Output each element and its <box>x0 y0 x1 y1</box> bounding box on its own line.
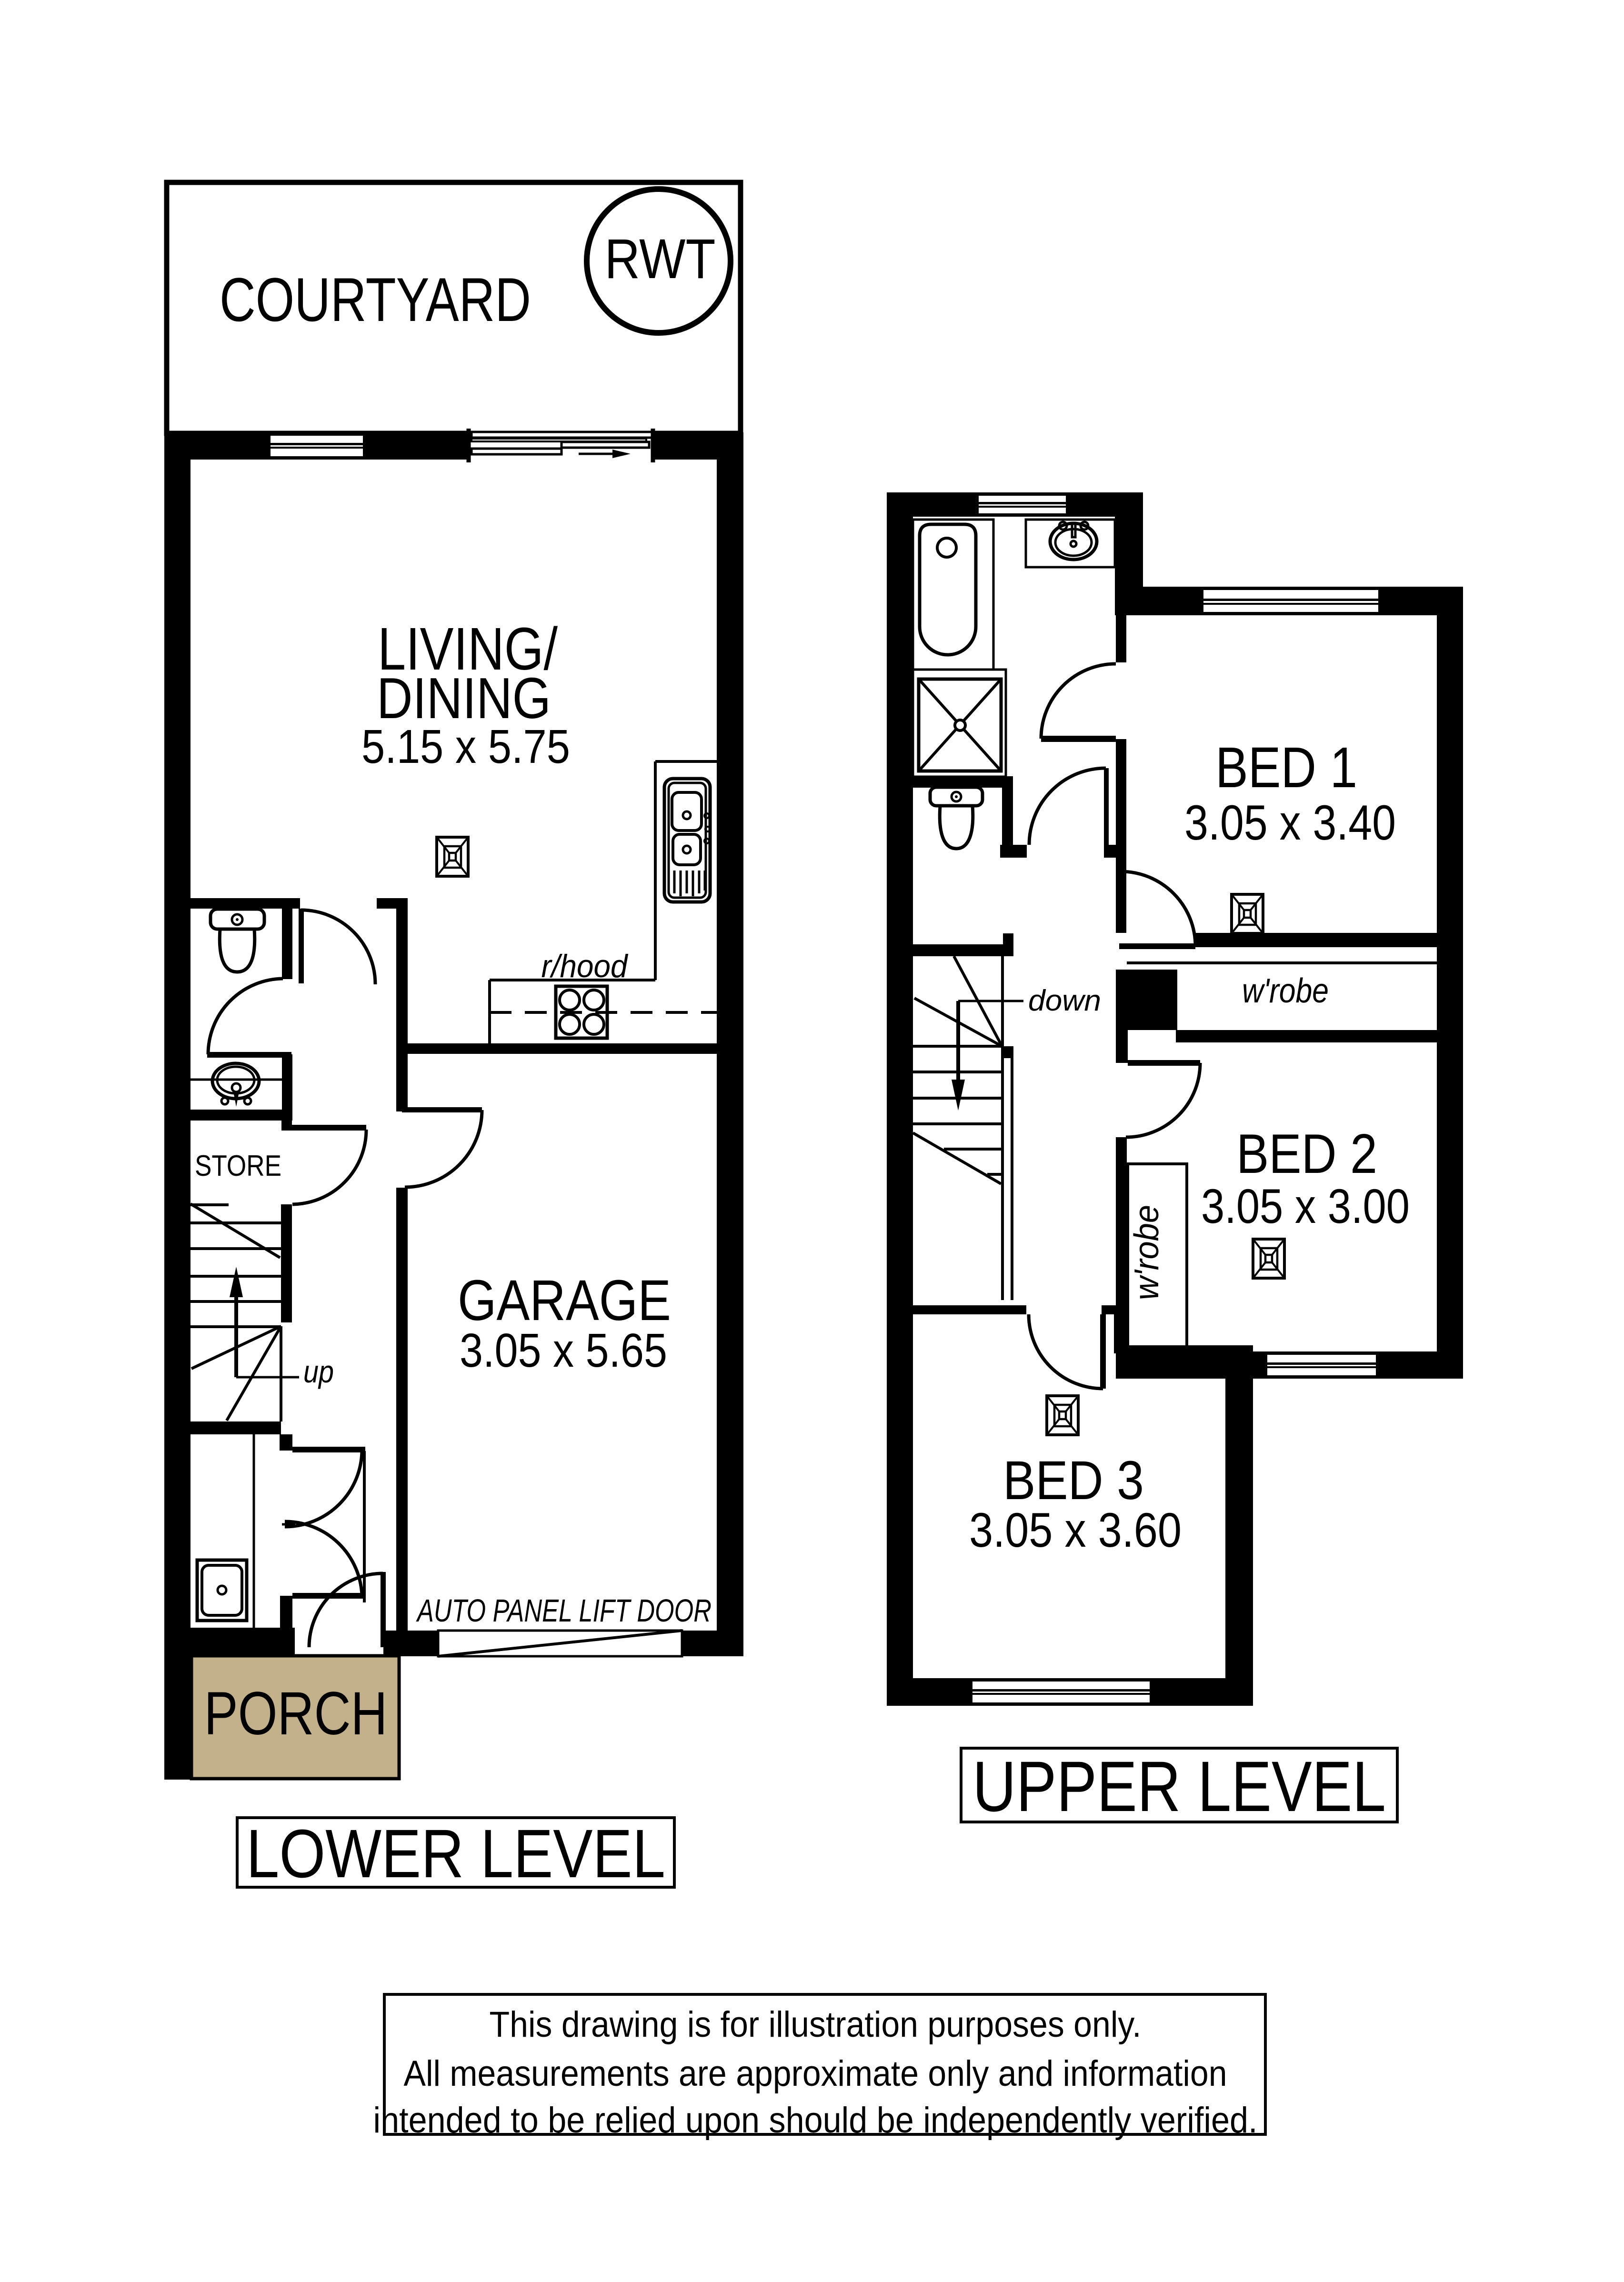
svg-text:3.05 x 3.40: 3.05 x 3.40 <box>1184 795 1396 851</box>
svg-text:BED 1: BED 1 <box>1215 735 1357 800</box>
svg-text:5.15 x 5.75: 5.15 x 5.75 <box>361 720 570 773</box>
svg-text:RWT: RWT <box>605 228 716 290</box>
svg-text:STORE: STORE <box>195 1150 281 1182</box>
svg-text:3.05 x 3.60: 3.05 x 3.60 <box>969 1503 1182 1557</box>
svg-text:PORCH: PORCH <box>204 1680 388 1748</box>
svg-text:BED 3: BED 3 <box>1003 1450 1144 1511</box>
svg-text:LOWER LEVEL: LOWER LEVEL <box>246 1815 665 1892</box>
svg-text:UPPER LEVEL: UPPER LEVEL <box>972 1746 1386 1826</box>
svg-text:All measurements are approxima: All measurements are approximate only an… <box>404 2053 1227 2094</box>
svg-text:3.05 x 3.00: 3.05 x 3.00 <box>1201 1179 1410 1233</box>
svg-text:3.05 x 5.65: 3.05 x 5.65 <box>460 1324 667 1377</box>
svg-text:w'robe: w'robe <box>1128 1205 1166 1300</box>
svg-text:up: up <box>303 1354 334 1389</box>
svg-text:intended to be relied upon sho: intended to be relied upon should be ind… <box>373 2100 1258 2141</box>
svg-text:AUTO PANEL LIFT DOOR: AUTO PANEL LIFT DOOR <box>416 1593 712 1629</box>
svg-text:w'robe: w'robe <box>1242 972 1329 1010</box>
svg-text:COURTYARD: COURTYARD <box>220 265 531 334</box>
svg-text:r/hood: r/hood <box>541 948 629 984</box>
svg-text:GARAGE: GARAGE <box>458 1268 671 1332</box>
svg-text:down: down <box>1028 984 1101 1017</box>
svg-text:BED 2: BED 2 <box>1236 1122 1377 1185</box>
svg-text:This drawing is for illustrati: This drawing is for illustration purpose… <box>490 2004 1142 2045</box>
